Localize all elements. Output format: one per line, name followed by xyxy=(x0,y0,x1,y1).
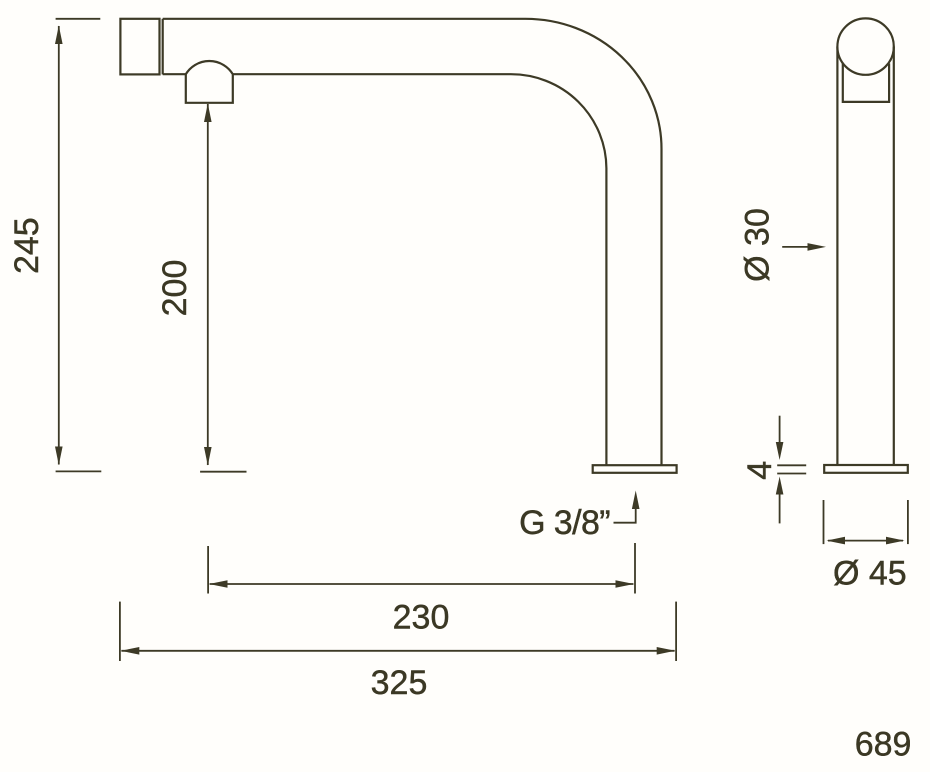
svg-text:200: 200 xyxy=(156,260,194,317)
svg-text:230: 230 xyxy=(393,599,450,637)
svg-text:G 3/8”: G 3/8” xyxy=(519,504,610,542)
svg-text:245: 245 xyxy=(8,217,46,274)
svg-text:689: 689 xyxy=(855,726,912,764)
svg-text:325: 325 xyxy=(371,664,428,702)
svg-text:4: 4 xyxy=(741,461,779,480)
svg-text:Ø 45: Ø 45 xyxy=(833,554,907,592)
svg-text:Ø 30: Ø 30 xyxy=(739,208,777,282)
